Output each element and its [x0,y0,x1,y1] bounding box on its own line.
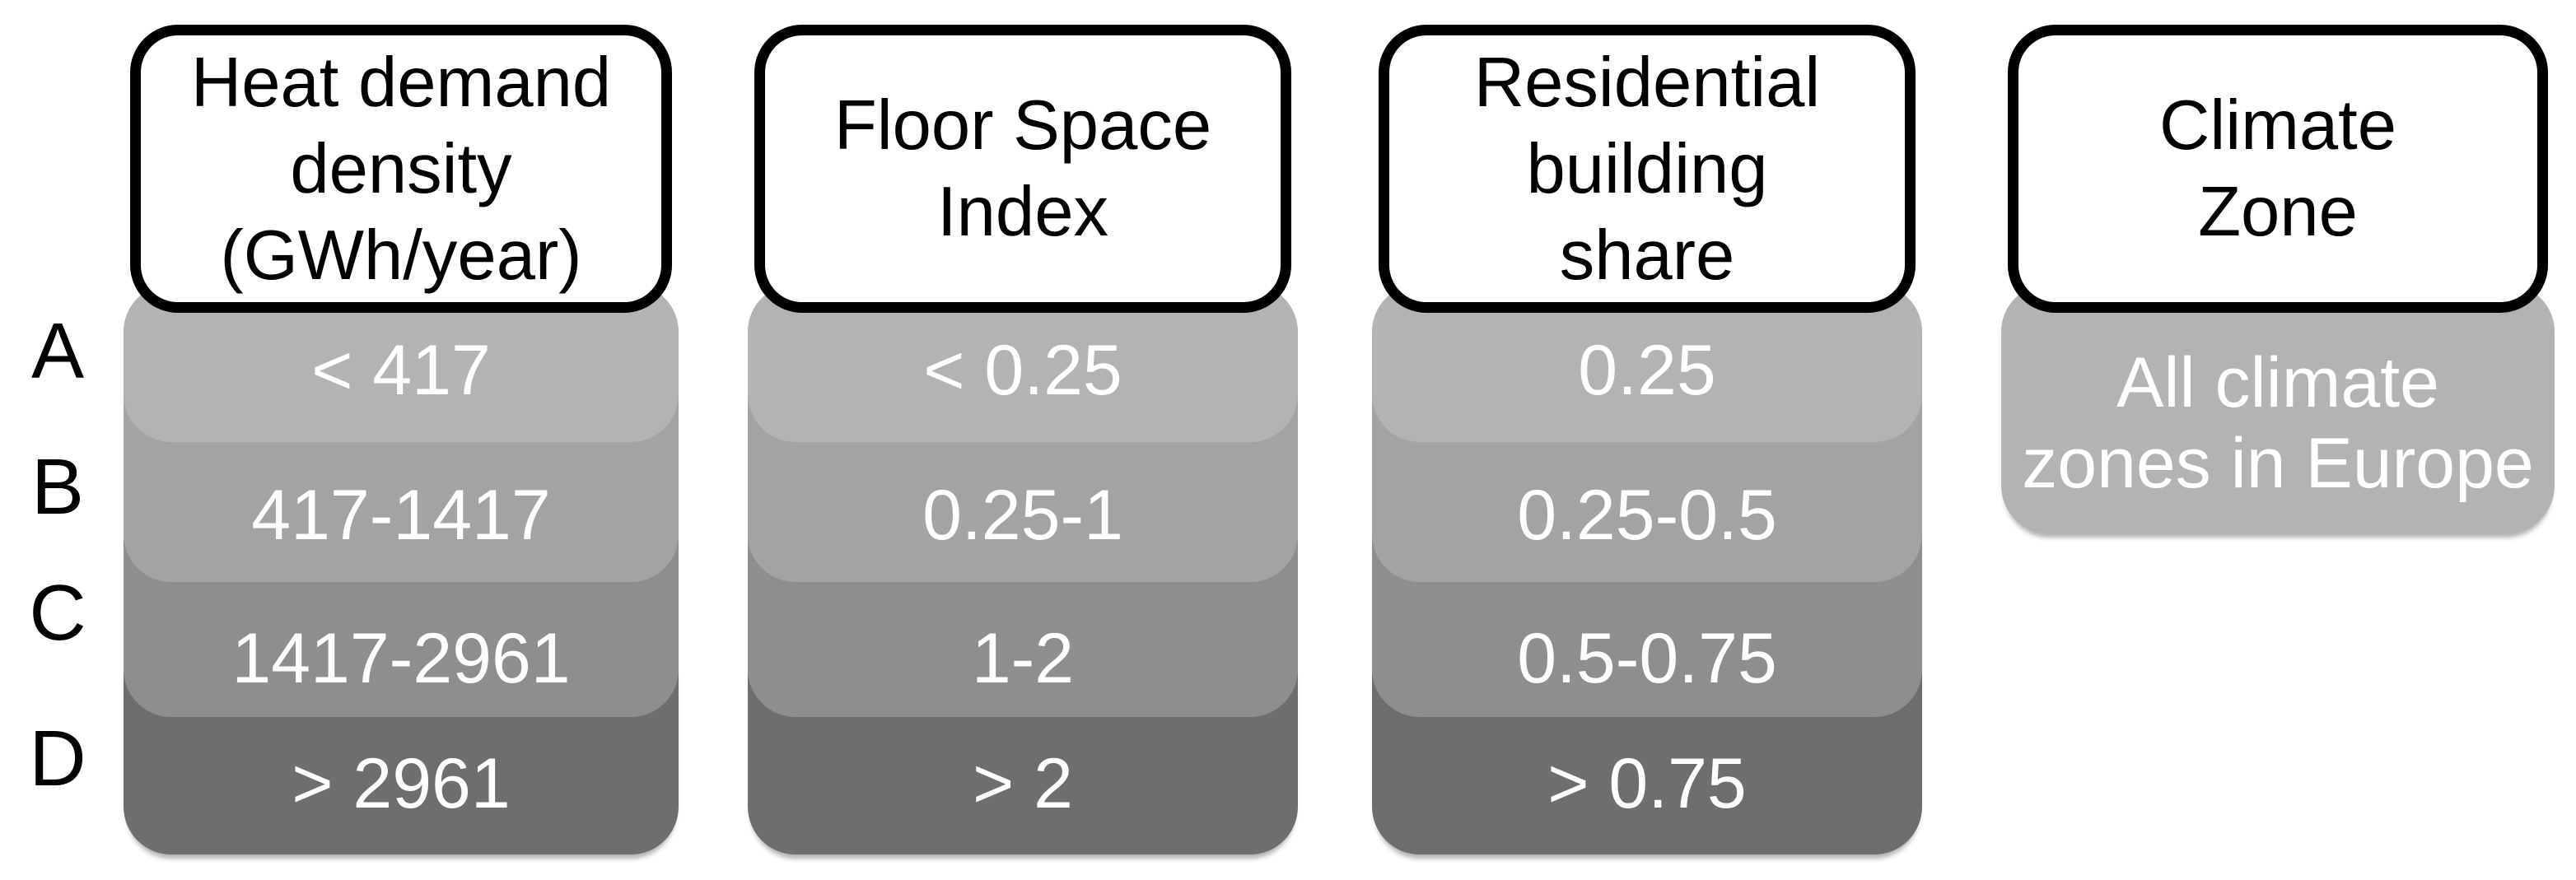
header-line: share [1560,212,1735,299]
column-floor-space-index: Floor Space Index < 0.25 0.25-1 1-2 > 2 [748,0,1298,880]
header-line: Floor Space [834,82,1211,169]
header-line: (GWh/year) [220,212,581,299]
floor-space-value-c: 1-2 [748,619,1298,698]
heat-demand-value-b: 417-1417 [124,476,679,555]
row-label-a: A [0,312,115,391]
header-line: Residential [1474,40,1821,126]
header-line: building [1526,126,1767,212]
header-line: Zone [2198,169,2358,255]
residential-value-c: 0.5-0.75 [1372,619,1922,698]
header-line: Heat demand [191,40,611,126]
residential-building-share-header: Residential building share [1379,25,1916,313]
heat-demand-value-c: 1417-2961 [124,619,679,698]
climate-zone-value: All climate zones in Europe [2001,313,2555,533]
floor-space-index-header: Floor Space Index [754,25,1291,313]
header-line: Index [937,169,1108,255]
heat-demand-density-header: Heat demand density (GWh/year) [130,25,672,313]
row-label-d: D [0,719,115,799]
climate-zone-value-line: All climate [2116,342,2439,423]
classification-figure: A B C D Heat demand density (GWh/year) <… [0,0,2576,880]
header-line: Climate [2159,82,2396,169]
residential-value-b: 0.25-0.5 [1372,476,1922,555]
residential-value-a: 0.25 [1372,331,1922,410]
climate-zone-header: Climate Zone [2008,25,2548,313]
row-label-c: C [0,574,115,653]
heat-demand-value-a: < 417 [124,331,679,410]
row-label-b: B [0,448,115,527]
header-line: density [290,126,511,212]
floor-space-value-d: > 2 [748,744,1298,823]
climate-zone-value-line: zones in Europe [2022,423,2534,504]
column-climate-zone: Climate Zone All climate zones in Europe [2001,0,2555,880]
floor-space-value-a: < 0.25 [748,331,1298,410]
residential-value-d: > 0.75 [1372,744,1922,823]
column-heat-demand-density: Heat demand density (GWh/year) < 417 417… [124,0,679,880]
column-residential-building-share: Residential building share 0.25 0.25-0.5… [1372,0,1922,880]
floor-space-value-b: 0.25-1 [748,476,1298,555]
heat-demand-value-d: > 2961 [124,744,679,823]
